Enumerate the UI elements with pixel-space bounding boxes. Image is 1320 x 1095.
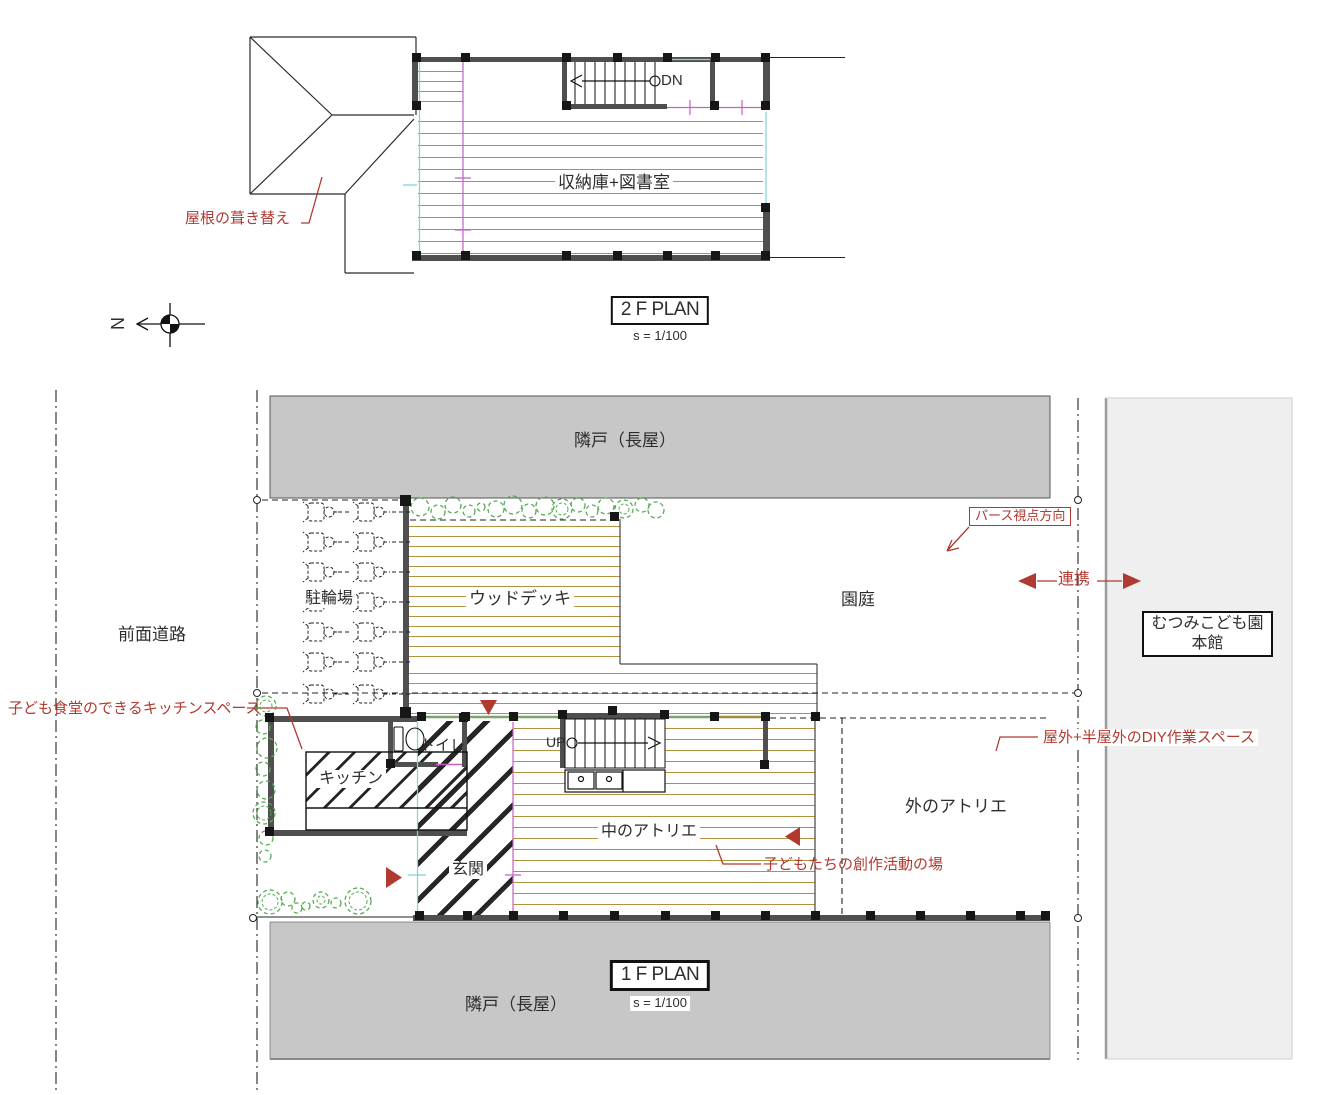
sink-counter [565,770,665,792]
link-label: 連携 [1058,571,1090,589]
creative-space-note: 子どもたちの創作活動の場 [763,856,943,873]
perspective-leader [947,527,969,551]
reference-lines-2f [770,58,845,258]
atelier-outside-label: 外のアトリエ [905,797,1007,817]
perspective-direction-label: パース視点方向 [969,507,1071,526]
creative-space-leader [716,845,761,864]
up-label: UP [546,734,565,750]
plan1f-title: 1 F PLAN [610,960,710,991]
down-label: DN [661,72,683,89]
view-arrow-down [480,700,497,715]
front-road-label: 前面道路 [118,625,186,645]
north-label: N [108,317,129,330]
site-plan-canvas: 屋根の葺き替え 収納庫+図書室 DN N 2 F PLAN s = 1/100 … [0,0,1320,1095]
stairs-2f [575,62,655,104]
plan2f-scale: s = 1/100 [630,329,690,344]
toilet-label: トイレ [420,737,465,754]
atelier-opening-line [505,722,521,915]
opening-lines-2f [455,62,763,255]
diy-space-leader [996,737,1038,751]
atelier-inside-label: 中のアトリエ [598,823,700,841]
roof-outline [250,37,416,273]
neighbor-top-label: 隣戸（長屋） [574,431,676,451]
roof-note-leader [301,177,322,223]
plan-linework [0,0,1320,1095]
entrance-label: 玄関 [449,861,487,879]
storage-library-label: 収納庫+図書室 [555,173,673,193]
honkan-line2: 本館 [1150,634,1265,654]
link-arrow-left [1018,573,1036,589]
view-arrow-left [785,827,800,846]
view-arrow-right [386,867,402,888]
kitchen-space-note: 子ども食堂のできるキッチンスペース [8,700,261,717]
roof-note-label: 屋根の葺き替え [185,210,290,227]
bush-icons [253,496,664,914]
wood-deck-label: ウッドデッキ [466,589,574,609]
neighbor-bottom-label: 隣戸（長屋） [465,995,567,1015]
honkan-line1: むつみこども園 [1150,614,1265,634]
kitchen-label: キッチン [316,770,386,788]
bicycle-parking-label: 駐輪場 [302,590,356,608]
north-symbol [137,303,205,347]
boundary-nodes [250,497,1082,922]
deck-wall [403,498,409,717]
diy-space-note: 屋外+半屋外のDIY作業スペース [1040,729,1258,746]
honkan-label-box: むつみこども園 本館 [1142,611,1273,657]
deck-edges [620,519,817,716]
plan2f-title: 2 F PLAN [611,296,709,325]
garden-label: 園庭 [841,590,875,610]
plan1f-scale: s = 1/100 [630,996,690,1011]
stairs-down-arrow [571,75,650,87]
